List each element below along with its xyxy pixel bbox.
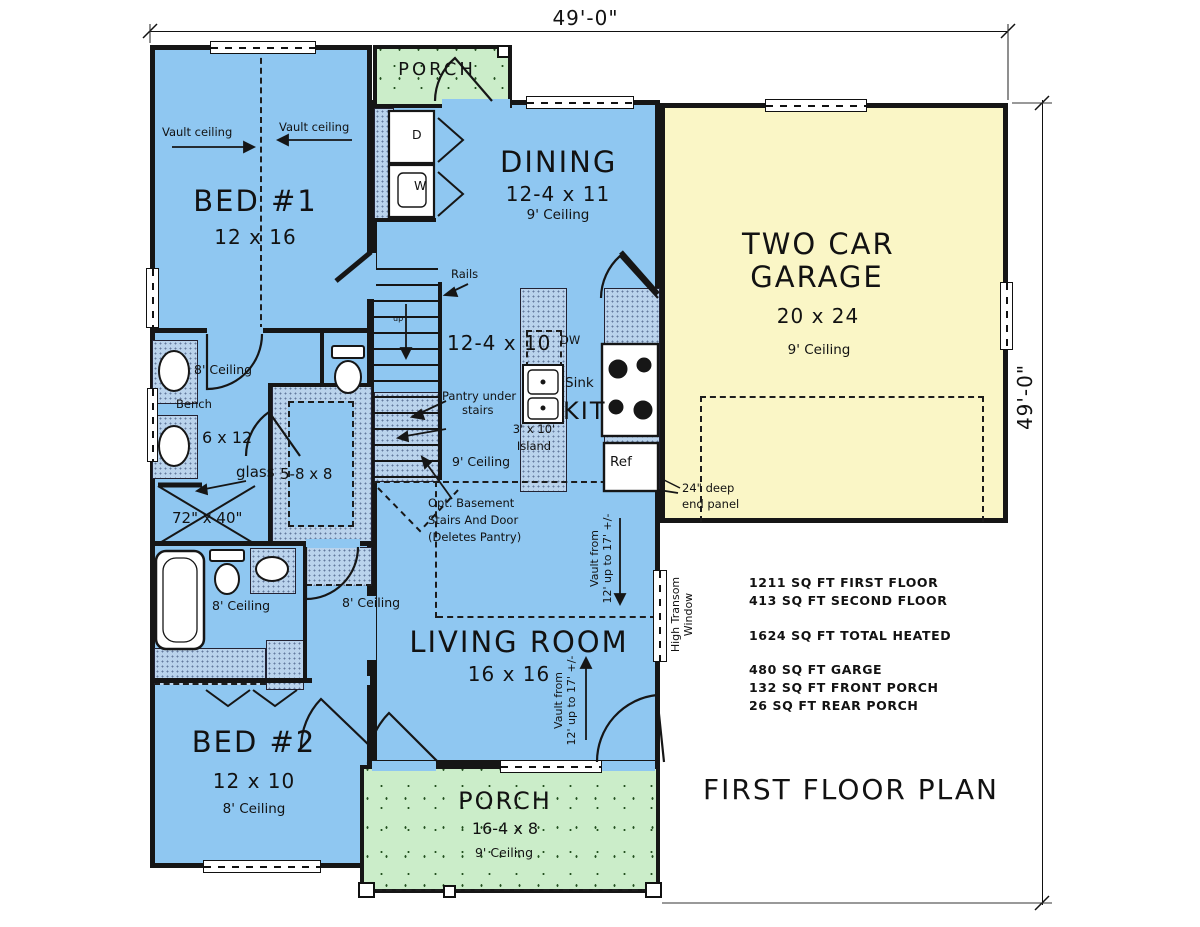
bed1-size: 12 x 16 [198,226,313,249]
floor-plan: 49'-0" 49'-0" PORCH Vault ceiling Vault … [0,0,1200,927]
front-porch-size: 16-4 x 8 [453,820,557,838]
kitchen-ceiling: 9' Ceiling [452,455,510,469]
kitchen-size: 12-4 x 10 [447,332,551,355]
front-porch-name: PORCH [446,788,564,816]
transom-note-line1: High Transom [670,567,683,662]
angled-walls [336,252,658,294]
pantry-note-line1: Pantry under [442,390,516,403]
stat-total-heated: 1624 SQ FT TOTAL HEATED [749,629,951,643]
door-bath2 [306,547,358,599]
toilet-bath2-bowl [215,564,239,594]
bed2-size: 12 x 10 [193,770,315,793]
dryer-label: D [412,128,422,142]
stat-first-floor: 1211 SQ FT FIRST FLOOR [749,576,938,590]
kitchen-name: KIT [563,398,606,426]
opt-basement-line1: Opt. Basement [428,497,514,510]
door-living-porch [368,713,440,764]
laundry-door-chevron [438,172,463,216]
bed1-name: BED #1 [183,185,328,218]
stairs-up-label: up [393,314,403,323]
stat-second-floor: 413 SQ FT SECOND FLOOR [749,594,948,608]
transom-note: High Transom Window [670,567,695,662]
transom-note-line2: Window [683,567,696,662]
garage-name-line2: GARAGE [742,261,892,294]
living-name: LIVING ROOM [405,626,633,659]
toilet-bath2 [210,550,244,561]
glass-label: glass [236,464,275,481]
shower-size-label: 72" x 40" [172,510,242,527]
toilet-master-bowl [335,361,361,393]
stat-garage: 480 SQ FT GARGE [749,663,882,677]
vault-note-2-line2: 12' up to 17' +/- [566,653,579,748]
annotation-leaders [660,478,680,488]
bath2-ceiling: 8' Ceiling [212,599,270,613]
garage-size: 20 x 24 [772,305,864,328]
bed2-closet-chevron [206,690,250,706]
dimension-width-label: 49'-0" [528,7,643,30]
bed2-closet-chevron [253,690,297,706]
island-label-line1: 3' x 10' [502,423,566,436]
fridge-label: Ref [610,455,632,471]
vault-note-2-line1: Vault from [553,653,566,748]
door-walkin-closet [246,412,300,456]
opt-basement-line2: Stairs And Door [428,514,518,527]
laundry-door-chevron [438,118,463,162]
sink-vanity1 [159,351,189,391]
vault-note-1-line1: Vault from [589,511,602,606]
hall-ceiling: 8' Ceiling [342,596,400,610]
master-bath-ceiling: 8' Ceiling [194,363,252,377]
vault-note-2: Vault from 12' up to 17' +/- [553,653,578,748]
toilet-master [332,346,364,358]
vault-ceiling-left-label: Vault ceiling [162,126,232,139]
opt-basement-line3: (Deletes Pantry) [428,531,521,544]
sink-label: Sink [565,376,594,392]
garage-name-line1: TWO CAR [742,228,892,261]
sink-vanity2 [159,426,189,466]
bench-label: Bench [176,398,212,411]
walkin-closet-size: 5-8 x 8 [280,466,332,483]
rails-label: Rails [451,268,478,281]
plan-title: FIRST FLOOR PLAN [700,774,1002,806]
rear-porch-label: PORCH [378,60,496,81]
dimension-height-label: 49'-0" [1014,332,1037,462]
stat-rear-porch: 26 SQ FT REAR PORCH [749,699,918,713]
stat-front-porch: 132 SQ FT FRONT PORCH [749,681,939,695]
bed2-ceiling: 8' Ceiling [206,802,302,818]
dishwasher-label: DW [560,334,580,347]
bed2-name: BED #2 [178,726,330,759]
washer-label: W [414,179,426,193]
front-porch-ceiling: 9' Ceiling [459,846,549,860]
end-panel-line2: end panel [682,498,739,511]
master-bath-size: 6 x 12 [202,429,252,447]
end-panel-line1: 24" deep [682,482,734,495]
dining-ceiling: 9' Ceiling [512,208,604,224]
garage-ceiling: 9' Ceiling [774,343,864,359]
island-label-line2: Island [502,440,566,453]
vault-note-1-line2: 12' up to 17' +/- [602,511,615,606]
dining-size: 12-4 x 11 [504,183,612,206]
pantry-note-line2: stairs [462,404,493,417]
sink-bath2 [256,557,288,581]
stove [602,344,658,436]
dining-name: DINING [500,146,615,179]
door-front-entry [597,695,664,762]
vault-note-1: Vault from 12' up to 17' +/- [589,511,614,606]
vault-ceiling-right-label: Vault ceiling [279,121,349,134]
